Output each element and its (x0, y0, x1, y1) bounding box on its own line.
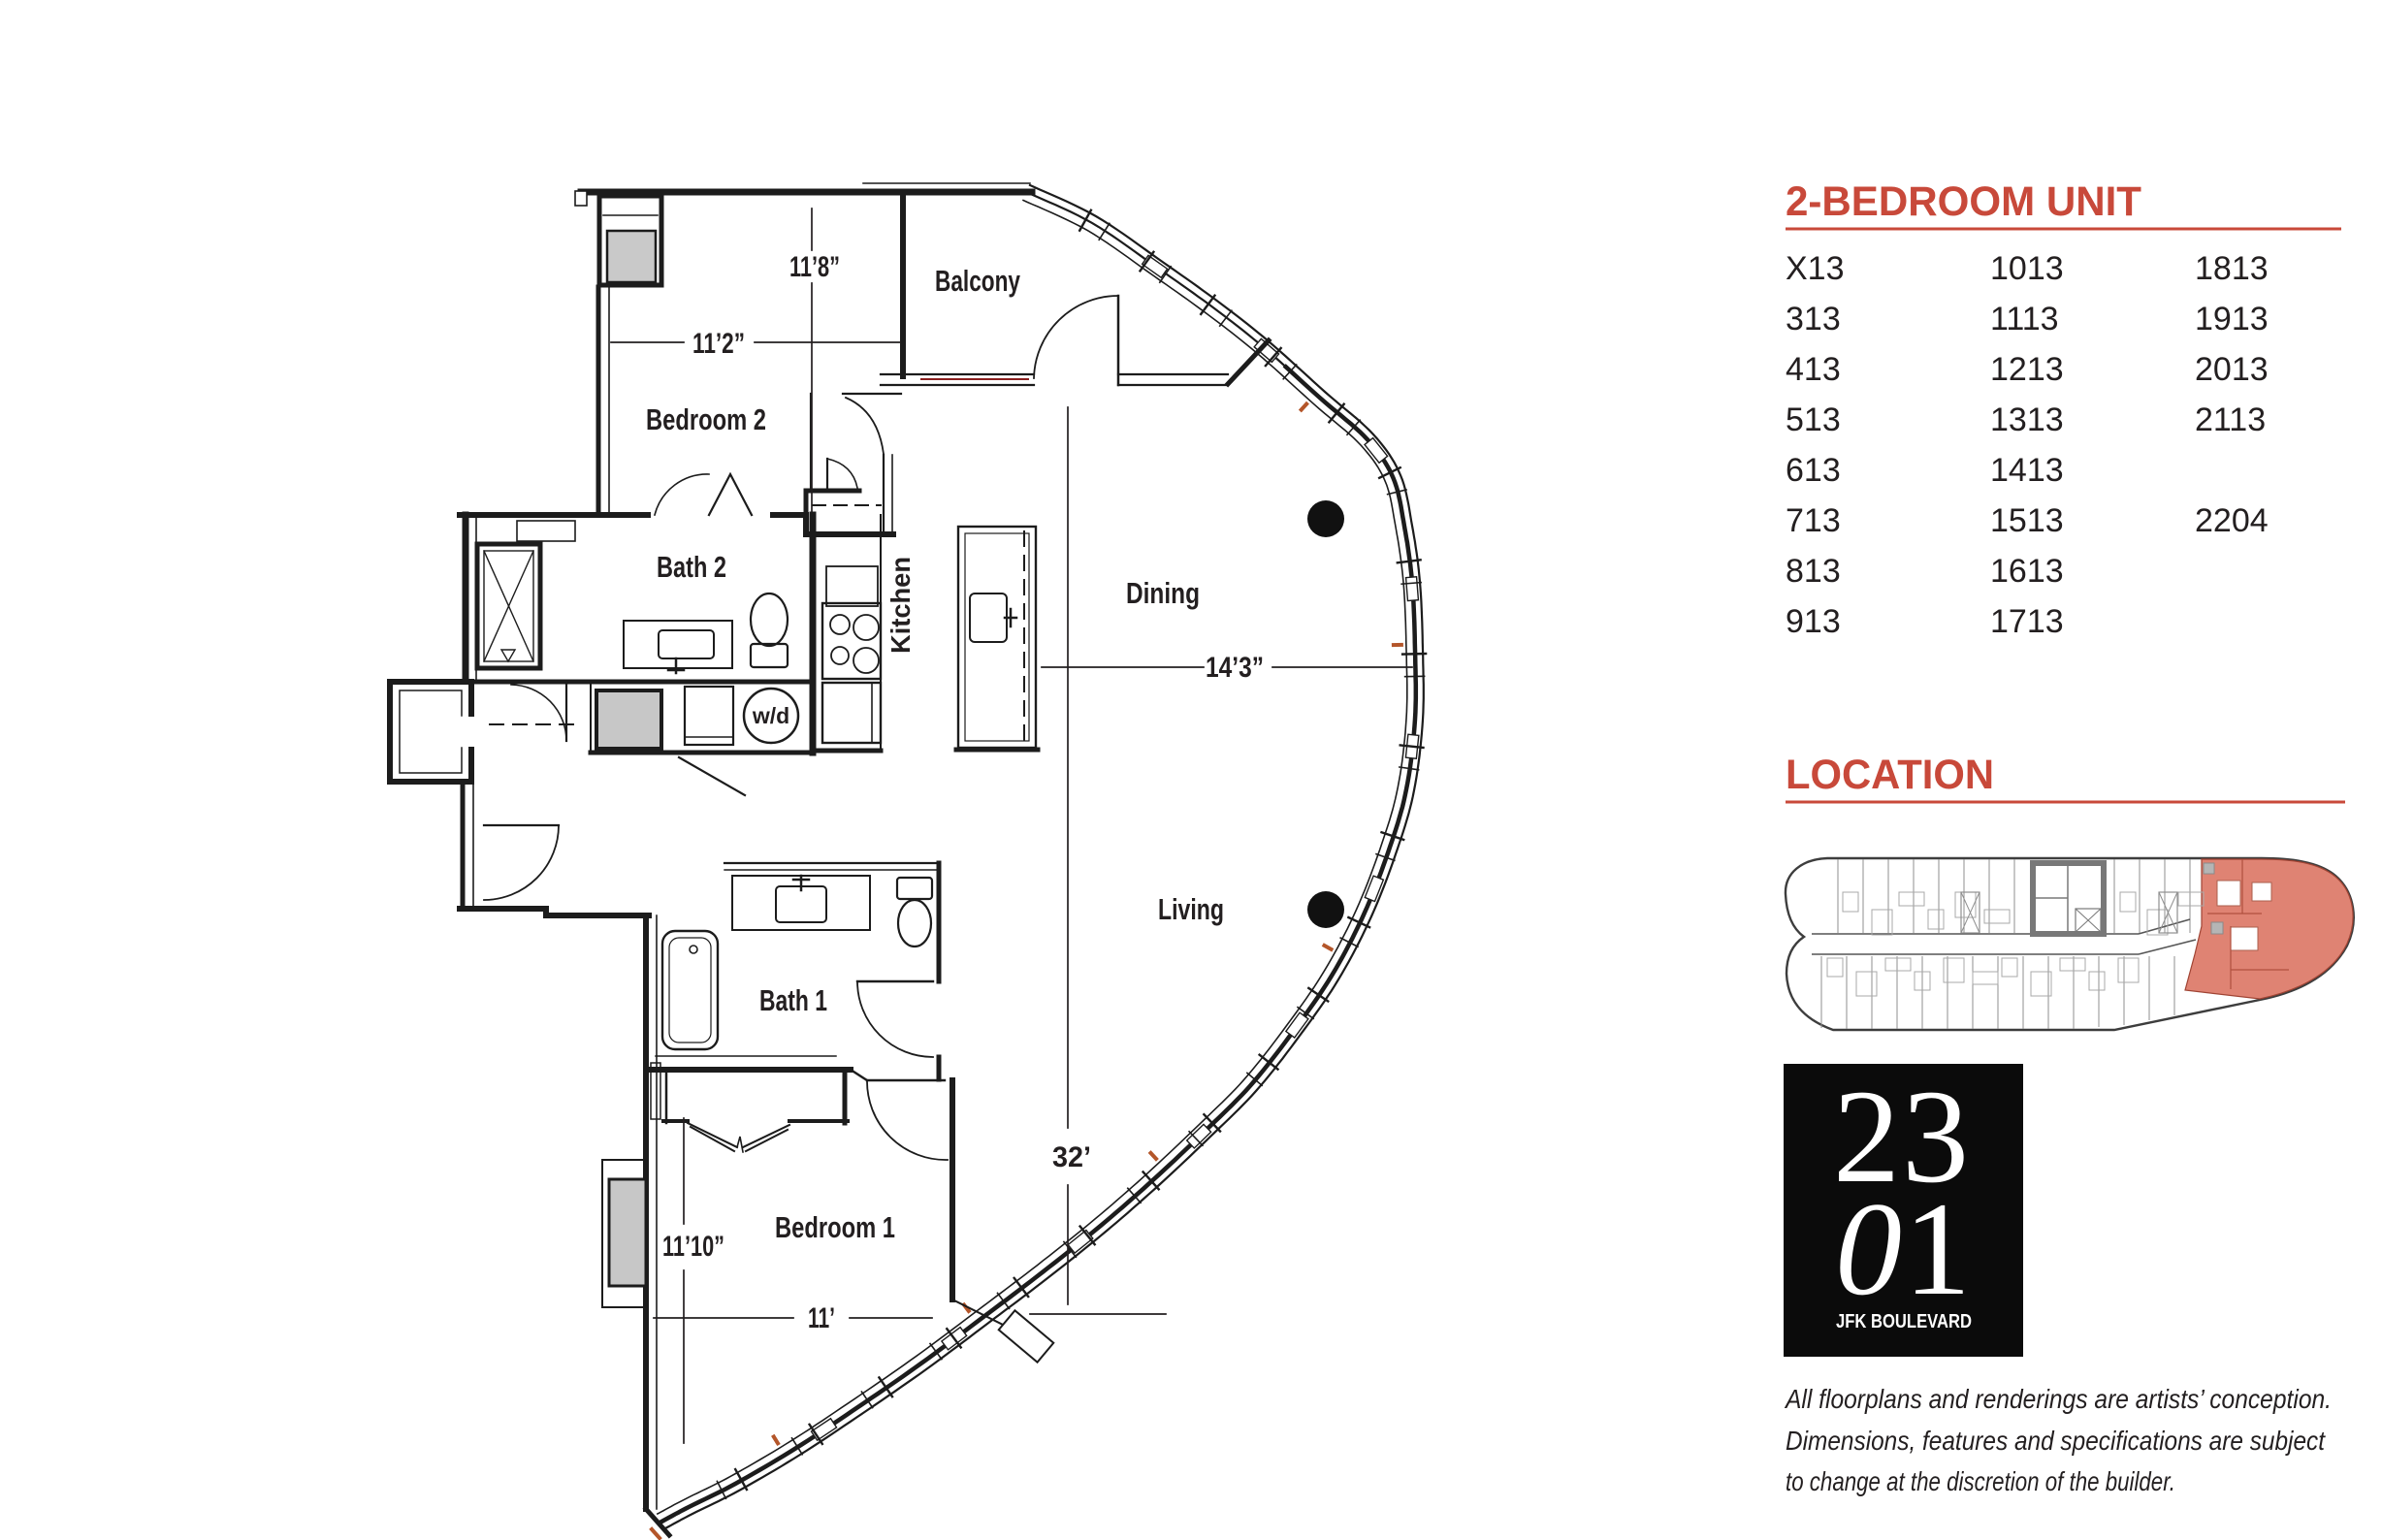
svg-text:All floorplans and renderings: All floorplans and renderings are artist… (1784, 1384, 2332, 1414)
svg-text:413: 413 (1786, 351, 1841, 388)
svg-text:1413: 1413 (1990, 452, 2064, 489)
svg-text:1513: 1513 (1990, 502, 2064, 539)
svg-text:2-BEDROOM UNIT: 2-BEDROOM UNIT (1786, 178, 2141, 225)
svg-text:11’8”: 11’8” (789, 251, 840, 283)
svg-text:01: 01 (1835, 1174, 1973, 1323)
svg-text:Dining: Dining (1126, 576, 1200, 610)
svg-text:613: 613 (1786, 452, 1841, 489)
svg-text:1613: 1613 (1990, 553, 2064, 590)
svg-text:Living: Living (1158, 892, 1224, 926)
svg-text:11’2”: 11’2” (692, 328, 745, 360)
svg-text:1313: 1313 (1990, 401, 2064, 438)
svg-text:11’10”: 11’10” (662, 1231, 724, 1263)
svg-text:713: 713 (1786, 502, 1841, 539)
svg-text:JFK BOULEVARD: JFK BOULEVARD (1836, 1311, 1972, 1332)
svg-text:Bedroom 1: Bedroom 1 (775, 1210, 895, 1244)
svg-text:913: 913 (1786, 603, 1841, 640)
svg-text:1213: 1213 (1990, 351, 2064, 388)
svg-text:w/d: w/d (752, 703, 789, 728)
svg-text:313: 313 (1786, 301, 1841, 337)
svg-text:Bath 1: Bath 1 (759, 983, 827, 1017)
svg-text:LOCATION: LOCATION (1786, 752, 1994, 798)
svg-text:Balcony: Balcony (935, 264, 1021, 298)
svg-text:Bedroom 2: Bedroom 2 (646, 402, 766, 436)
svg-text:1913: 1913 (2195, 301, 2269, 337)
svg-text:14’3”: 14’3” (1206, 652, 1264, 684)
svg-text:Bath 2: Bath 2 (657, 550, 726, 584)
svg-text:X13: X13 (1786, 250, 1845, 287)
svg-text:to change at the discretion of: to change at the discretion of the build… (1786, 1466, 2175, 1496)
svg-text:513: 513 (1786, 401, 1841, 438)
svg-text:Dimensions, features and speci: Dimensions, features and specifications … (1786, 1426, 2326, 1456)
svg-text:813: 813 (1786, 553, 1841, 590)
svg-text:11’: 11’ (808, 1302, 835, 1334)
svg-text:2113: 2113 (2195, 401, 2266, 438)
svg-text:1713: 1713 (1990, 603, 2064, 640)
svg-text:2013: 2013 (2195, 351, 2269, 388)
svg-text:1113: 1113 (1990, 301, 2059, 337)
svg-text:2204: 2204 (2195, 502, 2269, 539)
svg-text:Kitchen: Kitchen (885, 557, 916, 654)
svg-text:1813: 1813 (2195, 250, 2269, 287)
svg-text:32’: 32’ (1052, 1141, 1091, 1173)
svg-text:1013: 1013 (1990, 250, 2064, 287)
